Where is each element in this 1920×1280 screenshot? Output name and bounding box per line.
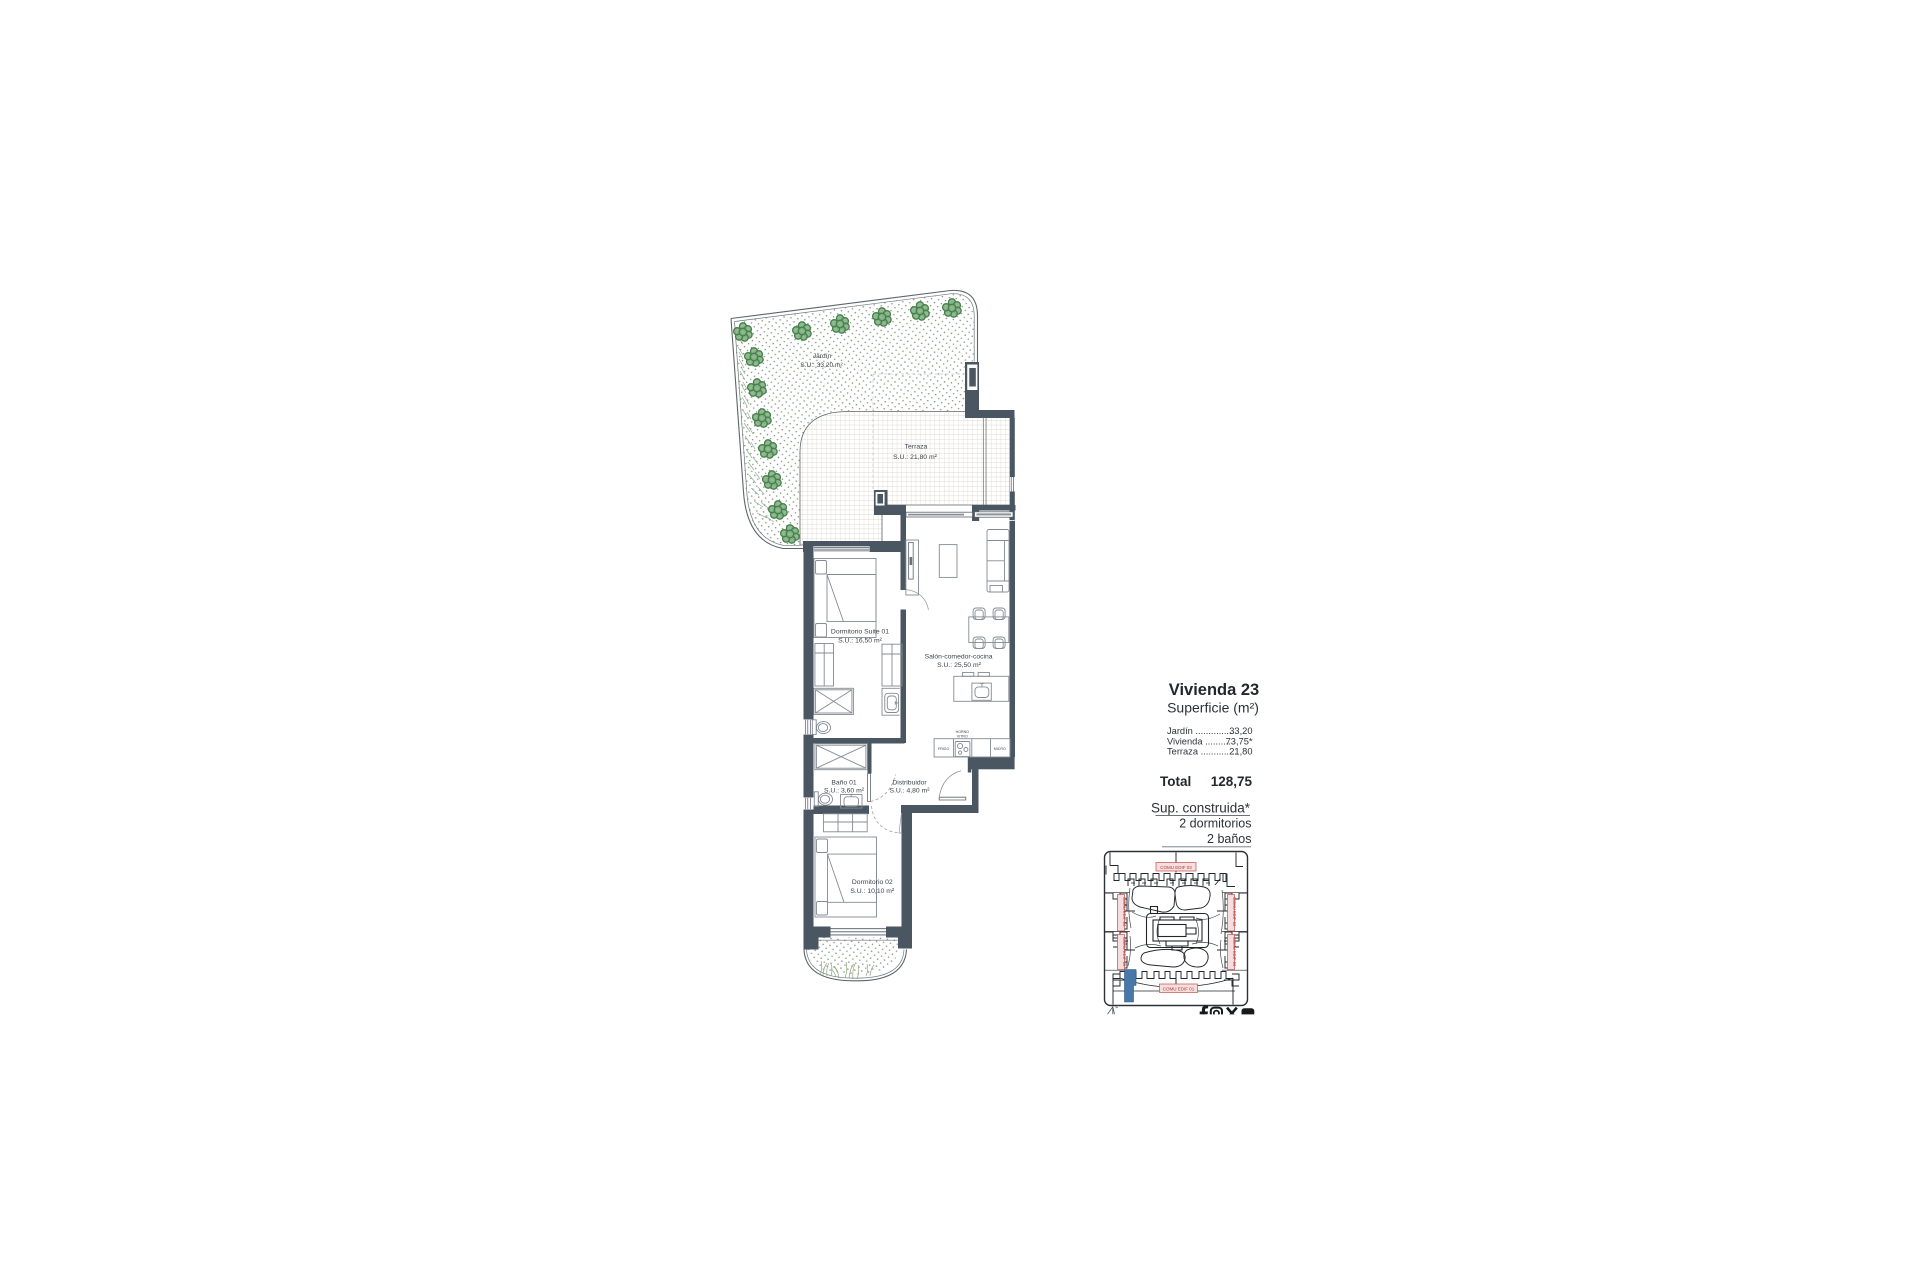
svg-text:MICRO: MICRO bbox=[994, 747, 1006, 751]
svg-text:2 baños: 2 baños bbox=[1207, 832, 1251, 846]
svg-text:Vivienda ..........: Vivienda .......... bbox=[1167, 737, 1231, 747]
svg-text:Jardín ...............: Jardín ............... bbox=[1167, 726, 1234, 736]
svg-text:Superficie (m²): Superficie (m²) bbox=[1167, 700, 1259, 716]
svg-text:COMU EDIF 06: COMU EDIF 06 bbox=[1232, 937, 1237, 967]
svg-text:FRIGO: FRIGO bbox=[938, 747, 950, 751]
svg-text:S.U.: 21,80 m²: S.U.: 21,80 m² bbox=[893, 454, 938, 461]
svg-text:S.U.: 25,50 m²: S.U.: 25,50 m² bbox=[937, 662, 982, 669]
svg-text:VITRO: VITRO bbox=[957, 734, 968, 738]
svg-text:128,75: 128,75 bbox=[1211, 774, 1253, 789]
svg-text:Dormitorio 02: Dormitorio 02 bbox=[852, 879, 893, 886]
svg-text:Distribuidor: Distribuidor bbox=[892, 780, 927, 787]
svg-text:S.U.: 16,50 m²: S.U.: 16,50 m² bbox=[838, 638, 883, 645]
svg-text:S.U.: 4,80 m²: S.U.: 4,80 m² bbox=[889, 788, 930, 795]
svg-text:Total: Total bbox=[1160, 774, 1191, 789]
svg-text:33,20: 33,20 bbox=[1229, 726, 1252, 736]
svg-text:S.U.: 3,60 m²: S.U.: 3,60 m² bbox=[824, 788, 865, 795]
svg-text:Jardín: Jardín bbox=[813, 353, 832, 360]
svg-text:COMU EDIF 01: COMU EDIF 01 bbox=[1163, 987, 1195, 992]
svg-text:COMU EDIF 04: COMU EDIF 04 bbox=[1122, 897, 1127, 927]
svg-text:Baño 01: Baño 01 bbox=[831, 780, 857, 787]
svg-text:S.U.: 33,20 m²: S.U.: 33,20 m² bbox=[800, 362, 843, 369]
svg-text:Vivienda 23: Vivienda 23 bbox=[1169, 681, 1260, 699]
svg-text:HORNO: HORNO bbox=[956, 730, 970, 734]
svg-text:S.U.: 10,10 m²: S.U.: 10,10 m² bbox=[850, 888, 895, 895]
svg-text:21,80: 21,80 bbox=[1229, 747, 1252, 757]
svg-text:Salón-comedor-cocina: Salón-comedor-cocina bbox=[925, 654, 993, 661]
svg-text:Terraza ..............: Terraza .............. bbox=[1167, 747, 1237, 757]
svg-text:COMU EDIF 02: COMU EDIF 02 bbox=[1232, 897, 1237, 927]
svg-text:Terraza: Terraza bbox=[905, 444, 928, 451]
svg-text:2 dormitorios: 2 dormitorios bbox=[1179, 817, 1251, 831]
svg-text:COMU EDIF 03: COMU EDIF 03 bbox=[1160, 865, 1192, 870]
svg-text:Sup. construida*: Sup. construida* bbox=[1151, 801, 1251, 816]
svg-text:Dormitorio Suite 01: Dormitorio Suite 01 bbox=[831, 629, 889, 636]
svg-text:73,75*: 73,75* bbox=[1226, 737, 1253, 747]
svg-text:COMU EDIF 05: COMU EDIF 05 bbox=[1122, 937, 1127, 967]
